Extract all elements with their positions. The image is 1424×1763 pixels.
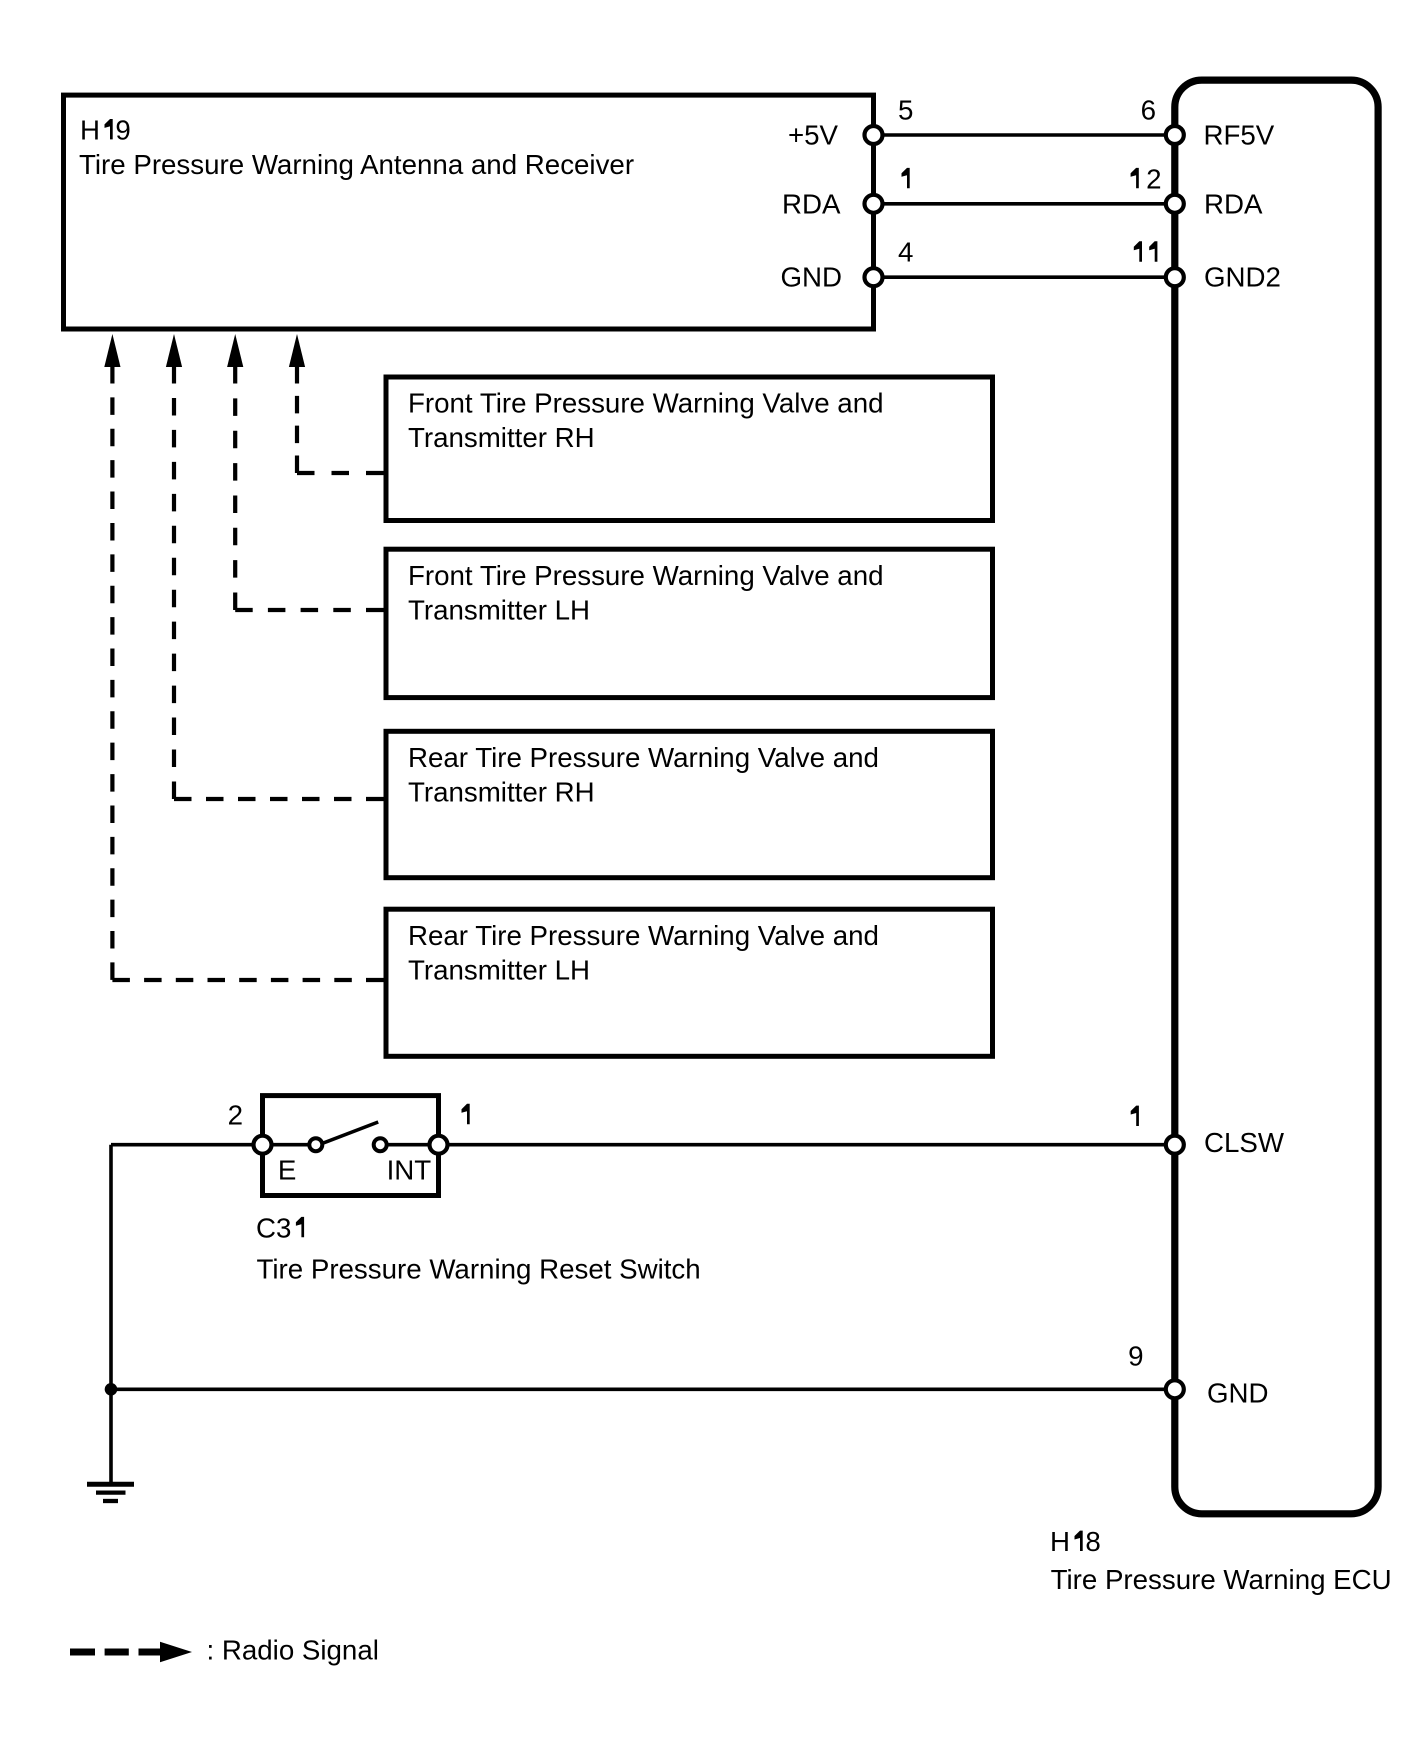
- svg-text:Tire Pressure Warning Antenna: Tire Pressure Warning Antenna and Receiv…: [79, 149, 634, 180]
- svg-text:H: H: [80, 114, 100, 145]
- svg-text:Tire Pressure Warning ECU: Tire Pressure Warning ECU: [1051, 1564, 1392, 1595]
- svg-text:9: 9: [1128, 1341, 1143, 1372]
- svg-text:Front Tire Pressure Warning Va: Front Tire Pressure Warning Valve and: [408, 560, 884, 591]
- svg-text:GND: GND: [1207, 1378, 1269, 1409]
- svg-text:E: E: [278, 1154, 296, 1185]
- svg-text:Rear Tire Pressure Warning Val: Rear Tire Pressure Warning Valve and: [408, 920, 879, 951]
- svg-text:RDA: RDA: [782, 188, 841, 219]
- svg-text:RDA: RDA: [1204, 188, 1263, 219]
- svg-text:2: 2: [1146, 163, 1161, 194]
- svg-text:Tire Pressure Warning Reset Sw: Tire Pressure Warning Reset Switch: [257, 1254, 701, 1285]
- svg-text:2: 2: [228, 1100, 243, 1131]
- svg-text:+5V: +5V: [788, 120, 839, 151]
- svg-text:GND2: GND2: [1204, 262, 1281, 293]
- svg-text:8: 8: [1085, 1526, 1100, 1557]
- svg-text:RF5V: RF5V: [1204, 120, 1275, 151]
- svg-text:Transmitter RH: Transmitter RH: [408, 422, 595, 453]
- svg-text:6: 6: [1141, 95, 1156, 126]
- svg-text:Transmitter LH: Transmitter LH: [408, 594, 590, 625]
- svg-text:4: 4: [898, 237, 913, 268]
- svg-text:INT: INT: [387, 1154, 432, 1185]
- svg-text:Front Tire Pressure Warning Va: Front Tire Pressure Warning Valve and: [408, 388, 884, 419]
- svg-text:Transmitter LH: Transmitter LH: [408, 954, 590, 985]
- svg-text:Rear Tire Pressure Warning Val: Rear Tire Pressure Warning Valve and: [408, 742, 879, 773]
- svg-text:GND: GND: [780, 262, 842, 293]
- svg-text:H: H: [1050, 1526, 1070, 1557]
- svg-text:Transmitter RH: Transmitter RH: [408, 777, 595, 808]
- svg-text:5: 5: [898, 95, 913, 126]
- svg-text:: Radio Signal: : Radio Signal: [207, 1635, 379, 1666]
- svg-text:CLSW: CLSW: [1204, 1127, 1285, 1158]
- svg-text:9: 9: [115, 114, 130, 145]
- svg-text:C3: C3: [256, 1212, 291, 1243]
